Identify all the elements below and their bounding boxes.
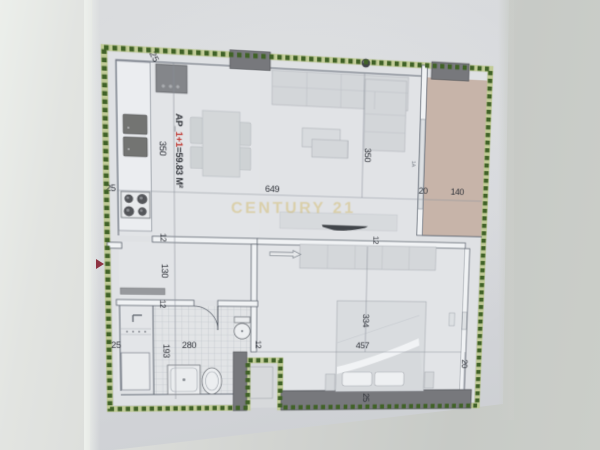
svg-text:25: 25 bbox=[111, 341, 122, 351]
svg-text:12: 12 bbox=[254, 340, 263, 348]
svg-text:20: 20 bbox=[459, 359, 468, 368]
svg-text:12: 12 bbox=[158, 300, 167, 309]
svg-text:12: 12 bbox=[371, 236, 380, 245]
svg-text:280: 280 bbox=[182, 341, 197, 351]
svg-text:457: 457 bbox=[356, 341, 370, 350]
svg-text:25: 25 bbox=[361, 393, 371, 402]
svg-text:1A: 1A bbox=[410, 161, 415, 167]
svg-text:140: 140 bbox=[450, 188, 464, 198]
svg-text:350: 350 bbox=[362, 148, 372, 163]
svg-text:193: 193 bbox=[161, 344, 171, 359]
svg-text:AP_1+1=59.83 M²: AP_1+1=59.83 M² bbox=[173, 113, 184, 189]
svg-text:350: 350 bbox=[157, 141, 168, 157]
svg-text:20: 20 bbox=[419, 187, 429, 197]
svg-text:649: 649 bbox=[265, 184, 280, 195]
svg-text:12: 12 bbox=[159, 233, 169, 242]
svg-text:334: 334 bbox=[360, 314, 370, 328]
svg-text:130: 130 bbox=[159, 264, 169, 279]
